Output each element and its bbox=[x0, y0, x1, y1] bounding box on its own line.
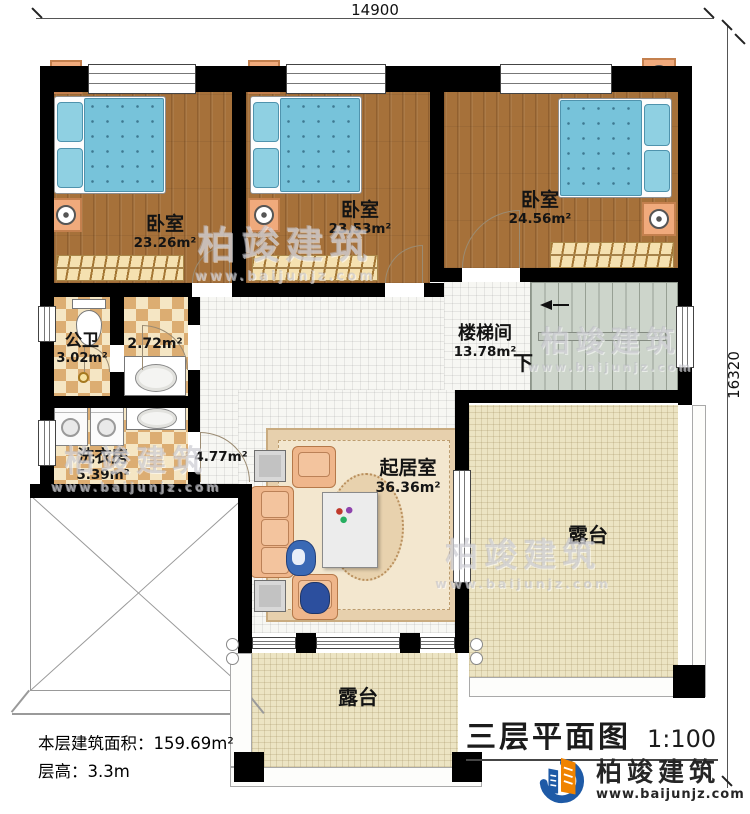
nightstand bbox=[50, 198, 82, 232]
room-label-living: 起居室 36.36m² bbox=[350, 458, 466, 496]
floor-area-note: 本层建筑面积：159.69m² bbox=[38, 730, 288, 758]
wardrobe bbox=[252, 255, 378, 281]
washer-door bbox=[61, 418, 80, 437]
brand-name: 柏竣建筑 bbox=[596, 760, 745, 787]
wall-segment bbox=[40, 396, 200, 408]
window bbox=[500, 64, 612, 94]
lamp-icon bbox=[254, 205, 274, 225]
wall-segment bbox=[232, 92, 246, 297]
wall-segment bbox=[400, 633, 420, 653]
washing-machine-icon bbox=[90, 404, 124, 446]
room-label-bedroom2: 卧室 23.53m² bbox=[310, 200, 410, 237]
terrace-railing bbox=[692, 405, 706, 697]
cushion bbox=[261, 547, 289, 574]
cushion bbox=[261, 491, 289, 518]
wall-segment bbox=[424, 283, 444, 297]
wall-segment bbox=[30, 484, 248, 498]
lamp-icon bbox=[56, 205, 76, 225]
pillow bbox=[644, 150, 670, 192]
wall-segment bbox=[188, 408, 200, 432]
wall-segment bbox=[444, 268, 462, 282]
room-label-bedroom3: 卧室 24.56m² bbox=[490, 190, 590, 227]
armchair bbox=[292, 446, 336, 488]
column bbox=[673, 665, 705, 698]
stair-arrow-head bbox=[540, 300, 552, 310]
bed-duvet bbox=[84, 98, 164, 192]
window bbox=[420, 637, 455, 649]
person-figure bbox=[300, 582, 330, 614]
eave-line bbox=[12, 713, 240, 715]
coffee-table bbox=[322, 492, 378, 568]
dimension-tick bbox=[703, 7, 714, 18]
room-label-bathroom: 公卫 3.02m² bbox=[46, 332, 118, 366]
room-label-terrace-bottom: 露台 bbox=[326, 686, 390, 709]
brand-logo-icon bbox=[534, 754, 588, 808]
lamp-icon bbox=[649, 209, 669, 229]
pillow bbox=[253, 148, 279, 188]
window bbox=[316, 637, 400, 649]
wardrobe bbox=[56, 255, 184, 281]
wall-segment bbox=[520, 268, 690, 282]
right-dimension-label: 16320 bbox=[725, 347, 743, 403]
cushion bbox=[298, 452, 330, 477]
side-table bbox=[254, 580, 286, 612]
drawing-title: 三层平面图 bbox=[466, 712, 631, 756]
window bbox=[252, 637, 296, 649]
pillow bbox=[644, 104, 670, 146]
nightstand bbox=[248, 198, 280, 232]
brand-logo-block: 柏竣建筑 www.baijunjz.com bbox=[534, 754, 750, 808]
window bbox=[286, 64, 386, 94]
wall-segment bbox=[455, 390, 690, 403]
floor-notes: 本层建筑面积：159.69m² 层高：3.3m bbox=[38, 730, 288, 786]
roof-cross-lines bbox=[31, 496, 246, 690]
room-label-washroom: 2.72m² bbox=[120, 336, 190, 352]
pillow bbox=[253, 102, 279, 142]
cushion bbox=[261, 519, 289, 546]
wall-segment bbox=[188, 297, 200, 325]
bed-duvet bbox=[560, 100, 642, 196]
room-label-terrace-right: 露台 bbox=[556, 524, 620, 547]
railing-post bbox=[226, 638, 239, 651]
stair-down-label: 下 bbox=[508, 352, 538, 375]
railing-post bbox=[226, 652, 239, 665]
sink-icon bbox=[137, 408, 177, 429]
wall-segment bbox=[238, 484, 252, 653]
person-shirt bbox=[292, 549, 305, 565]
stair-direction-arrow bbox=[553, 304, 569, 306]
wall-segment bbox=[40, 283, 192, 297]
window bbox=[676, 306, 694, 368]
wall-segment bbox=[430, 92, 444, 282]
stair-handrail bbox=[538, 332, 666, 341]
brand-text: 柏竣建筑 www.baijunjz.com bbox=[596, 760, 745, 802]
floor-height-note: 层高：3.3m bbox=[38, 758, 288, 786]
nightstand bbox=[642, 202, 676, 236]
window bbox=[88, 64, 196, 94]
wall-segment bbox=[296, 633, 316, 653]
brand-website: www.baijunjz.com bbox=[596, 787, 745, 802]
person-figure bbox=[286, 540, 316, 576]
side-table bbox=[254, 450, 286, 482]
wall-segment bbox=[246, 283, 385, 297]
toilet-tank bbox=[72, 299, 106, 309]
floor-drain-icon bbox=[78, 372, 89, 383]
dimension-tick bbox=[734, 33, 745, 44]
roof-below-area bbox=[30, 495, 247, 691]
eave-line bbox=[11, 690, 30, 713]
top-dimension-label: 14900 bbox=[320, 1, 430, 19]
dimension-tick bbox=[31, 7, 42, 18]
pillow bbox=[57, 148, 83, 188]
right-dimension-line bbox=[727, 26, 728, 788]
bed-duvet bbox=[280, 98, 360, 192]
wall-segment bbox=[188, 370, 200, 396]
drawing-scale: 1:100 bbox=[647, 725, 716, 753]
room-label-hallway: 4.77m² bbox=[188, 450, 254, 466]
terrace-railing bbox=[469, 677, 706, 697]
wall-segment bbox=[188, 472, 200, 484]
washing-machine-icon bbox=[54, 404, 88, 446]
railing-post bbox=[470, 638, 483, 651]
room-label-bedroom1: 卧室 23.26m² bbox=[115, 214, 215, 251]
pillow bbox=[57, 102, 83, 142]
washer-door bbox=[97, 418, 116, 437]
railing-post bbox=[470, 652, 483, 665]
room-label-laundry: 洗衣房 5.39m² bbox=[48, 448, 158, 483]
wall-segment bbox=[455, 583, 469, 653]
table-decor-flowers bbox=[331, 503, 359, 527]
wardrobe bbox=[550, 242, 674, 268]
wall-segment bbox=[110, 372, 124, 396]
floor-plan-canvas: 14900 16320 bbox=[0, 0, 750, 814]
